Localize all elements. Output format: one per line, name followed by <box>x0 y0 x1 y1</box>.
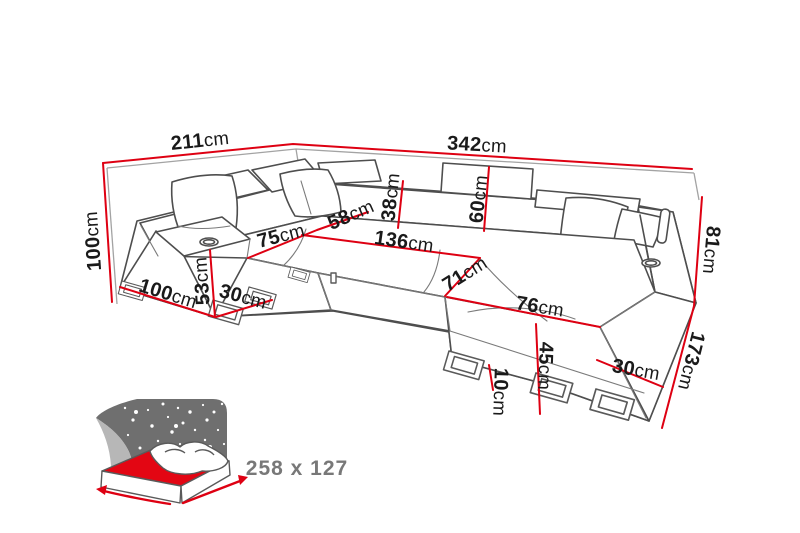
dim-136cm: 136cm <box>373 228 435 256</box>
dim-60cm: 60cm <box>467 174 492 224</box>
sofa-dimension-diagram: 211cm 342cm 100cm 75cm 58cm 38cm 60cm 13… <box>0 0 800 533</box>
dim-58cm: 58cm <box>325 196 377 234</box>
sleeping-dimensions-label: 258 x 127 <box>246 457 348 481</box>
dimension-labels: 211cm 342cm 100cm 75cm 58cm 38cm 60cm 13… <box>0 0 800 533</box>
dim-71cm: 71cm <box>439 253 491 296</box>
dim-76cm: 76cm <box>515 293 566 320</box>
dim-81cm: 81cm <box>699 225 723 275</box>
dim-30cm-right: 30cm <box>611 356 662 384</box>
dim-75cm: 75cm <box>255 220 307 252</box>
dim-342cm: 342cm <box>447 133 508 156</box>
dim-173cm: 173cm <box>674 330 708 393</box>
dim-53cm: 53cm <box>190 256 213 306</box>
dim-38cm: 38cm <box>379 172 404 222</box>
dim-30cm-left: 30cm <box>217 281 269 313</box>
dim-100cm-height: 100cm <box>81 211 105 272</box>
dim-10cm: 10cm <box>489 368 511 417</box>
dim-211cm: 211cm <box>170 128 230 154</box>
dim-45cm: 45cm <box>534 342 556 391</box>
